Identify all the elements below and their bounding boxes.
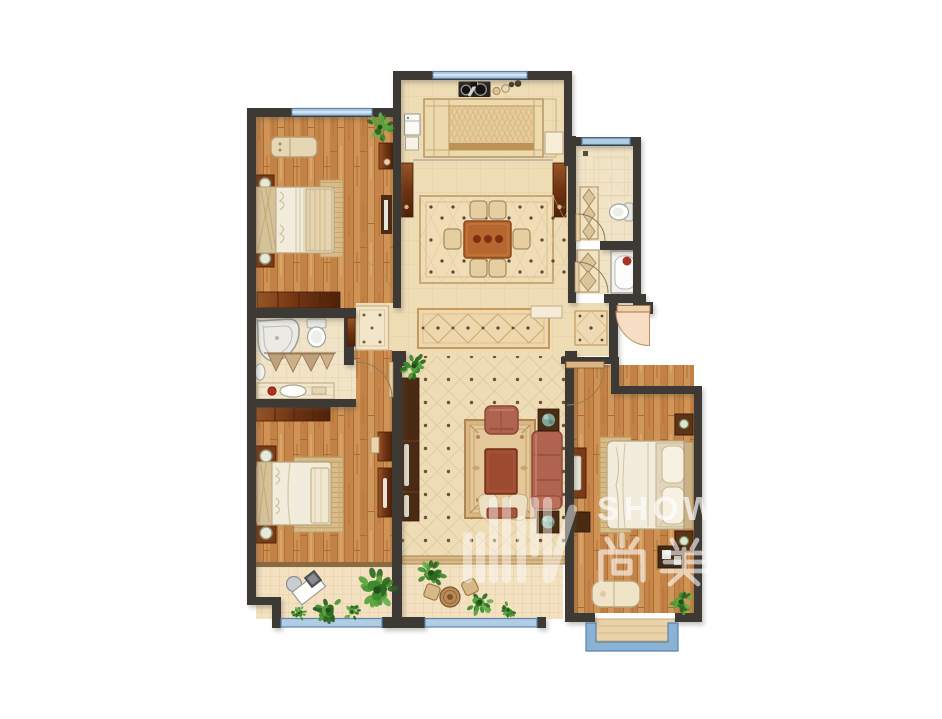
svg-text:SHOW: SHOW [597,490,720,527]
